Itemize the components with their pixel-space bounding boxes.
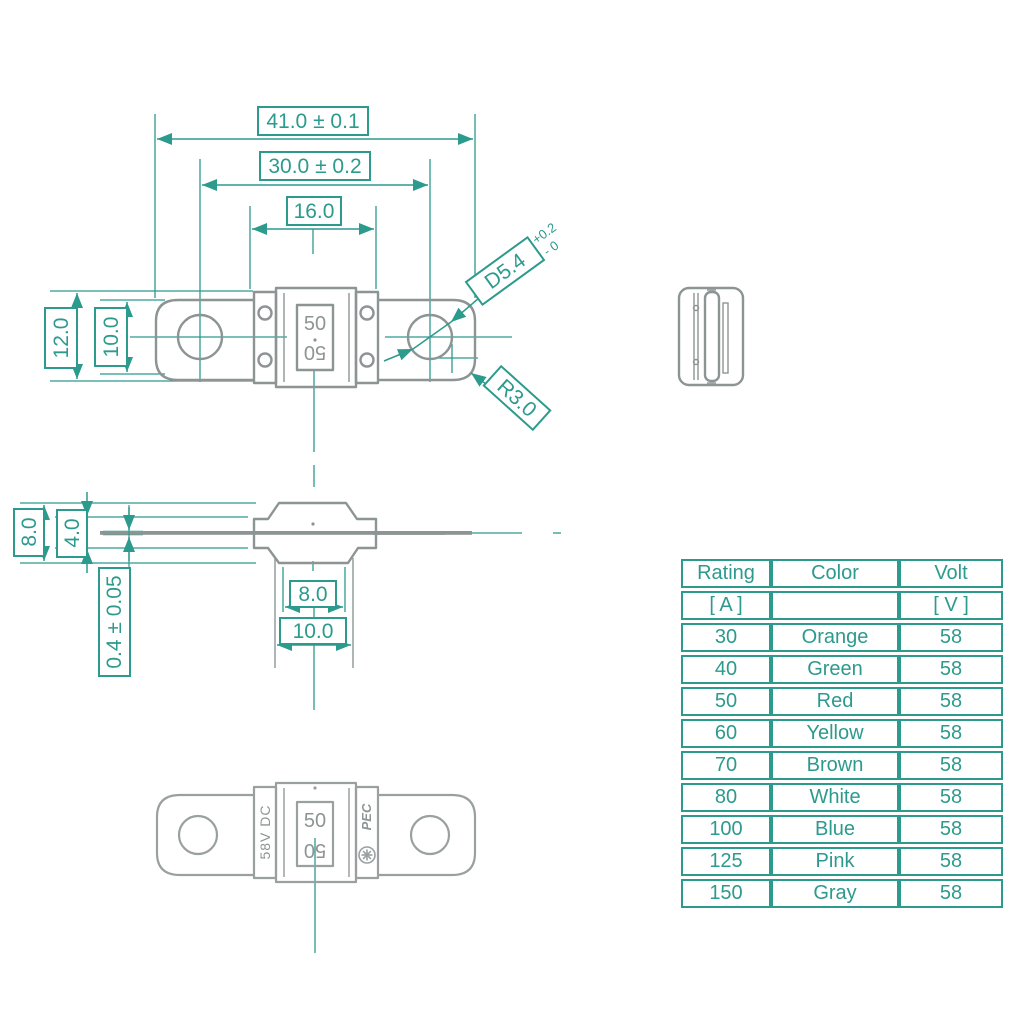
unit-amps: [ A ] [681, 591, 771, 620]
corner-radius-callout: R3.0 [484, 366, 550, 429]
table-row: 80 White 58 [681, 783, 1003, 812]
unit-volts: [ V ] [899, 591, 1003, 620]
cell-color: Blue [771, 815, 899, 844]
table-row: 125 Pink 58 [681, 847, 1003, 876]
dim-hole-pitch: 30.0 ± 0.2 [268, 155, 361, 178]
unit-blank [771, 591, 899, 620]
cell-rating: 150 [681, 879, 771, 908]
hole-diameter-callout: D5.4 +0.2 - 0 [465, 220, 568, 307]
rating-marking-bottom-inverted: 50 [304, 839, 326, 861]
fuse-body-bottom [276, 783, 356, 882]
cell-volt: 58 [899, 783, 1003, 812]
dim-base-width: 10.0 [293, 620, 334, 643]
cell-rating: 100 [681, 815, 771, 844]
cell-rating: 30 [681, 623, 771, 652]
header-rating: Rating [681, 559, 771, 588]
rivet [361, 307, 374, 320]
cell-color: Green [771, 655, 899, 684]
dim-body-height: 8.0 [18, 517, 41, 546]
right-terminal-outline-bottom [378, 795, 475, 875]
table-row: 70 Brown 58 [681, 751, 1003, 780]
cell-rating: 60 [681, 719, 771, 748]
table-row: 40 Green 58 [681, 655, 1003, 684]
terminal-blade-right [373, 531, 472, 535]
dimension-labels: 41.0 ± 0.1 30.0 ± 0.2 16.0 12.0 10.0 D5.… [14, 107, 568, 676]
cell-rating: 80 [681, 783, 771, 812]
fuse-datasheet-page: 50 50 50 50 58V DC PEC [0, 0, 1024, 1024]
rivet [259, 354, 272, 367]
cell-volt: 58 [899, 719, 1003, 748]
dim-terminal-inner-height: 10.0 [100, 317, 123, 358]
dim-terminal-outer-height: 12.0 [50, 318, 73, 359]
cell-volt: 58 [899, 815, 1003, 844]
rivet [259, 307, 272, 320]
end-view-blade-edge [723, 303, 728, 373]
cell-volt: 58 [899, 623, 1003, 652]
cell-rating: 50 [681, 687, 771, 716]
cell-volt: 58 [899, 687, 1003, 716]
cell-volt: 58 [899, 751, 1003, 780]
left-bolt-hole-bottom [179, 816, 217, 854]
table-row: 30 Orange 58 [681, 623, 1003, 652]
table-units-row: [ A ] [ V ] [681, 591, 1003, 620]
dim-boss-width: 8.0 [298, 583, 327, 606]
voltage-marking: 58V DC [257, 804, 273, 859]
cell-volt: 58 [899, 879, 1003, 908]
rating-marking-bottom: 50 [304, 810, 326, 832]
cell-color: Red [771, 687, 899, 716]
left-terminal-outline-bottom [157, 795, 254, 875]
table-row: 50 Red 58 [681, 687, 1003, 716]
cell-color: Pink [771, 847, 899, 876]
rating-marking-top-inverted: 50 [304, 341, 326, 363]
table-row: 60 Yellow 58 [681, 719, 1003, 748]
cell-color: Orange [771, 623, 899, 652]
left-terminal-outline [156, 300, 254, 380]
rating-table: Rating Color Volt [ A ] [ V ] 30 Orange … [681, 556, 1003, 911]
table-header-row: Rating Color Volt [681, 559, 1003, 588]
cell-rating: 125 [681, 847, 771, 876]
cell-color: White [771, 783, 899, 812]
cell-color: Yellow [771, 719, 899, 748]
cell-rating: 40 [681, 655, 771, 684]
fuse-end-view [679, 288, 743, 385]
fuse-bottom-view: 50 50 58V DC PEC [157, 783, 475, 882]
dim-terminal-thickness: 0.4 ± 0.05 [103, 575, 126, 668]
rivet [361, 354, 374, 367]
rating-marking-top: 50 [304, 313, 326, 335]
fuse-body [276, 288, 356, 387]
dim-inner-height: 4.0 [61, 518, 84, 547]
table-row: 100 Blue 58 [681, 815, 1003, 844]
cell-volt: 58 [899, 655, 1003, 684]
dim-body-width: 16.0 [294, 200, 335, 223]
certification-mark-icon [359, 847, 375, 863]
cell-rating: 70 [681, 751, 771, 780]
right-bolt-hole-bottom [411, 816, 449, 854]
header-color: Color [771, 559, 899, 588]
fuse-side-view [100, 503, 472, 563]
cell-volt: 58 [899, 847, 1003, 876]
header-volt: Volt [899, 559, 1003, 588]
end-view-slot [705, 292, 719, 381]
brand-logo-text: PEC [359, 803, 374, 830]
table-row: 150 Gray 58 [681, 879, 1003, 908]
end-view-outline [679, 288, 743, 385]
right-band [356, 787, 378, 878]
cell-color: Brown [771, 751, 899, 780]
dim-overall-length: 41.0 ± 0.1 [266, 110, 359, 133]
cell-color: Gray [771, 879, 899, 908]
